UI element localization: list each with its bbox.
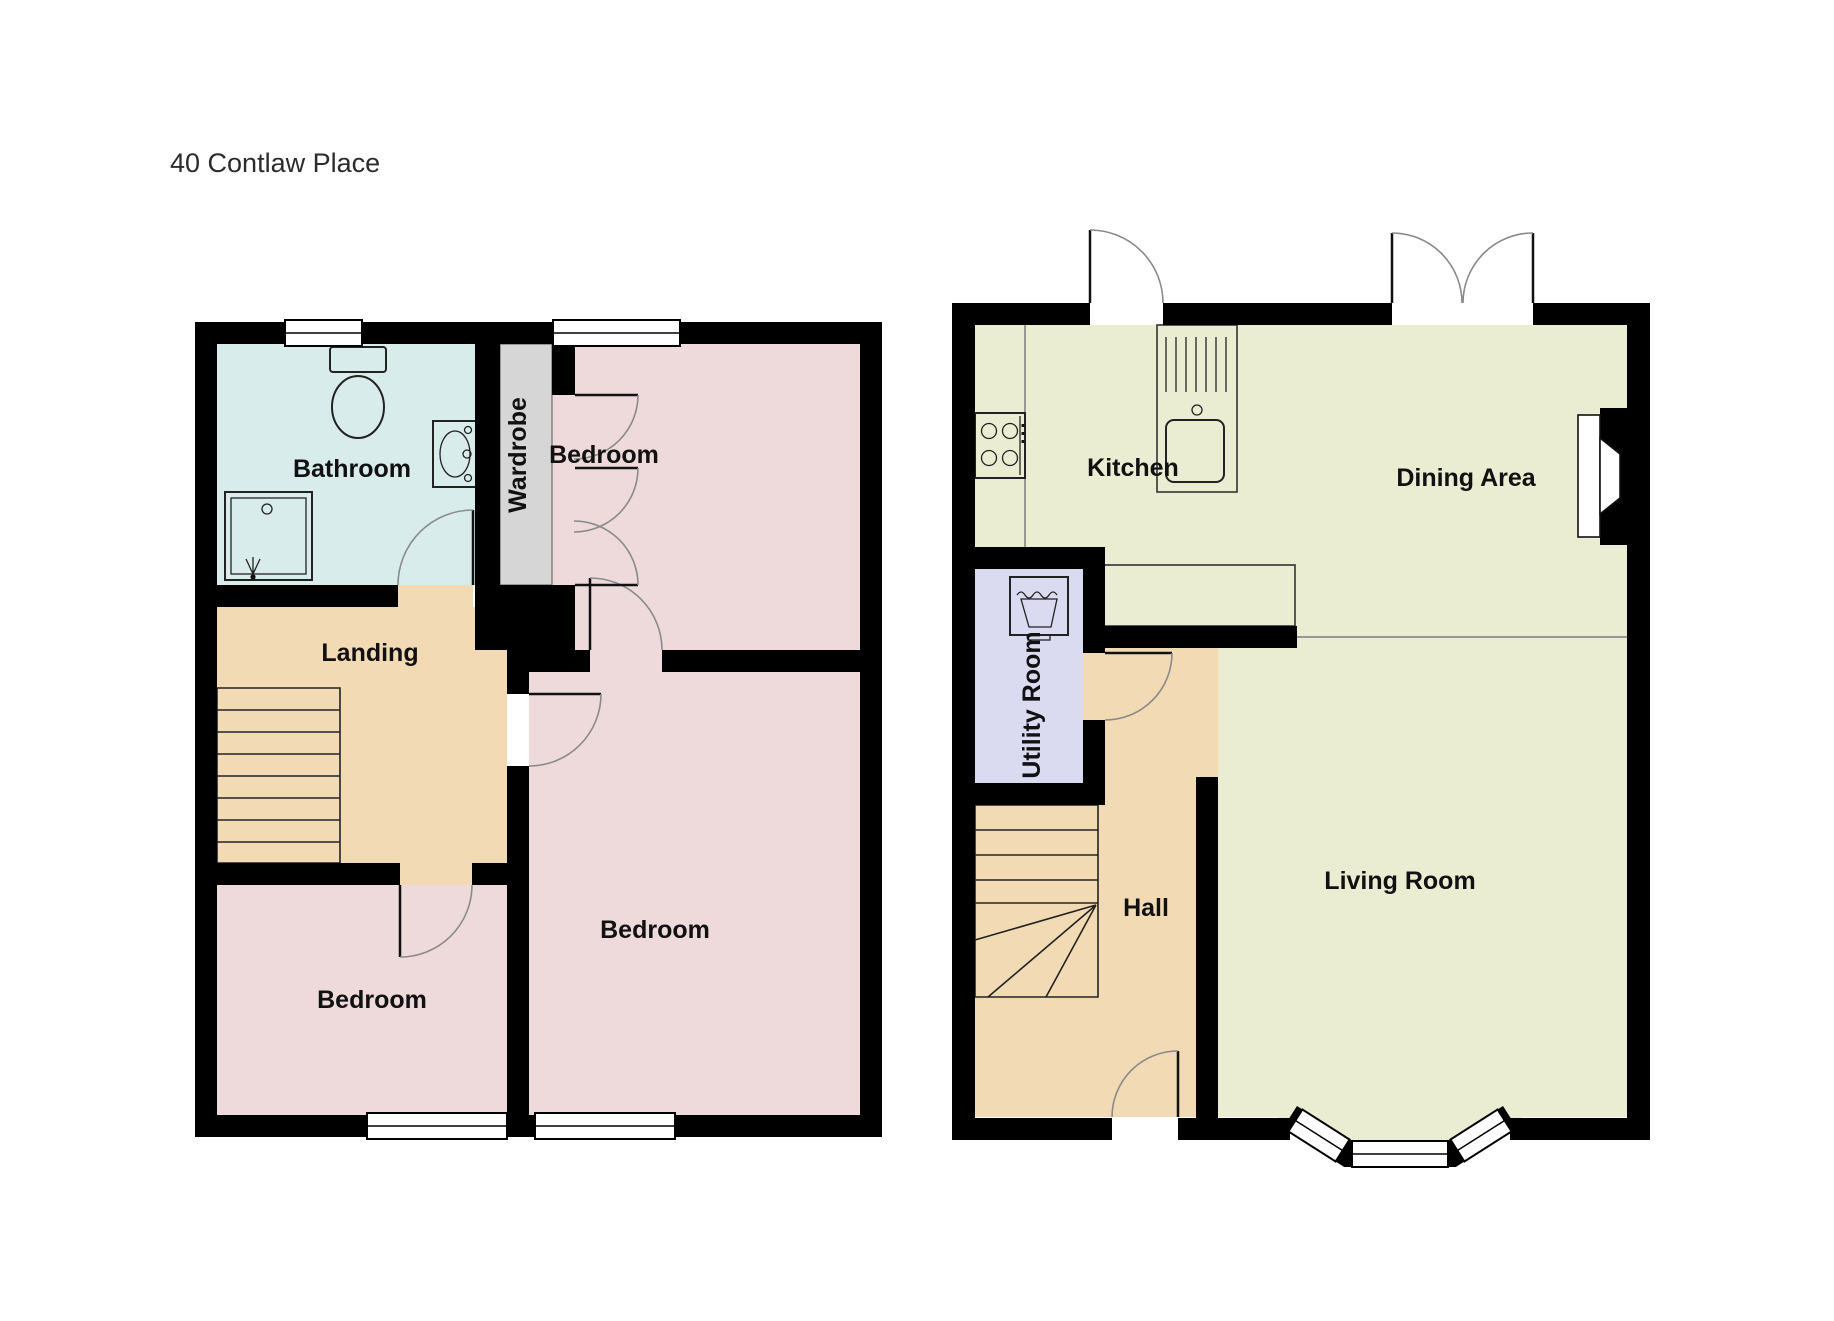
page-title: 40 Contlaw Place xyxy=(170,148,380,178)
stove-knob xyxy=(1022,424,1025,427)
label-bedroom-bottom: Bedroom xyxy=(317,986,427,1014)
upper-floor-plan: Bathroom Wardrobe Bedroom Landing Bedroo… xyxy=(195,320,882,1139)
stair-body xyxy=(975,805,1098,997)
room-landing-floor xyxy=(475,650,507,688)
label-landing: Landing xyxy=(321,639,418,667)
room-landing-floor xyxy=(340,688,507,863)
label-bathroom: Bathroom xyxy=(293,455,411,483)
label-wardrobe: Wardrobe xyxy=(504,397,532,513)
stove-knob xyxy=(1022,432,1025,435)
doorway-floor xyxy=(398,585,473,607)
room-bedroom-right-floor xyxy=(529,650,860,1115)
french-doors-dining xyxy=(1392,233,1533,303)
doorway-floor xyxy=(400,863,472,885)
door-arcs xyxy=(1392,233,1533,303)
doorway-floor xyxy=(1083,653,1105,720)
fireplace-hearth xyxy=(1578,415,1600,537)
staircase-upper xyxy=(217,688,340,863)
label-utility: Utility Room xyxy=(1018,631,1046,778)
room-hall-floor xyxy=(1098,777,1196,1117)
staircase-ground xyxy=(975,805,1098,997)
room-hall-floor xyxy=(1098,648,1218,777)
label-kitchen: Kitchen xyxy=(1087,454,1179,482)
label-hall: Hall xyxy=(1123,894,1169,922)
label-dining: Dining Area xyxy=(1396,464,1536,492)
door-arc xyxy=(1090,230,1163,303)
stove-knob xyxy=(1022,440,1025,443)
ground-floor-plan: Kitchen Dining Area Utility Room Hall Li… xyxy=(952,230,1650,1167)
room-bedroom-top-floor xyxy=(529,344,860,650)
label-living: Living Room xyxy=(1324,867,1475,895)
floorplan-canvas: 40 Contlaw Place xyxy=(0,0,1834,1321)
door-back-kitchen xyxy=(1090,230,1163,303)
kitchen-counter xyxy=(1100,565,1295,626)
floorplan-page: 40 Contlaw Place xyxy=(0,0,1834,1321)
room-hall-floor xyxy=(975,997,1098,1117)
label-bedroom-top: Bedroom xyxy=(549,441,659,469)
shower-head xyxy=(250,574,255,579)
label-bedroom-right: Bedroom xyxy=(600,916,710,944)
